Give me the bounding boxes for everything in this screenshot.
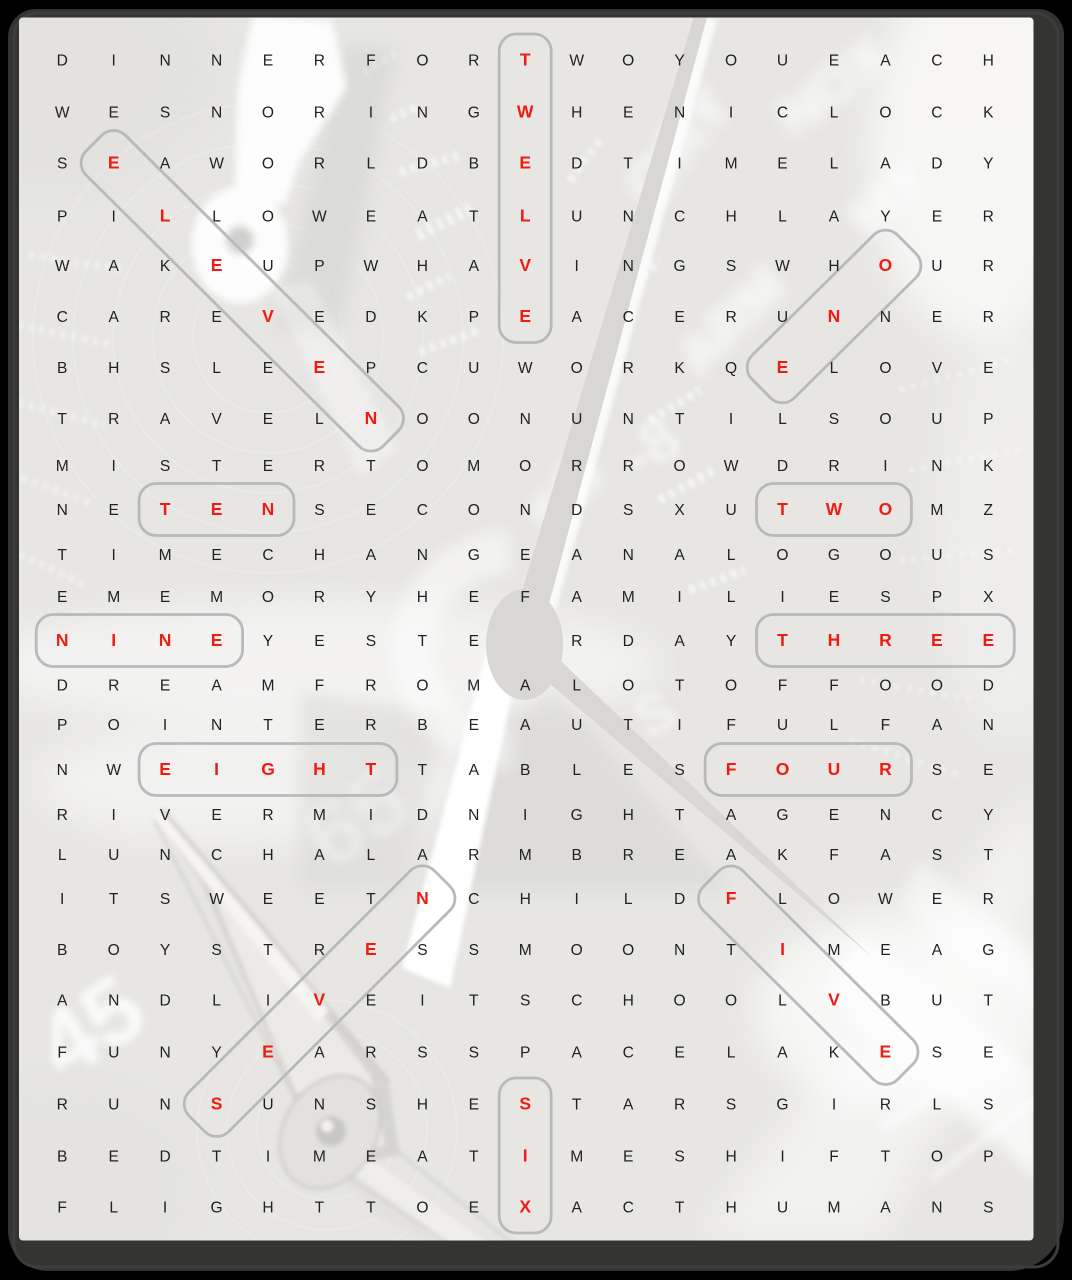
svg-text:I: I: [523, 1146, 528, 1166]
svg-text:X: X: [519, 1197, 531, 1217]
svg-text:W: W: [517, 102, 534, 122]
svg-text:N: N: [365, 408, 378, 428]
svg-text:T: T: [520, 50, 531, 70]
